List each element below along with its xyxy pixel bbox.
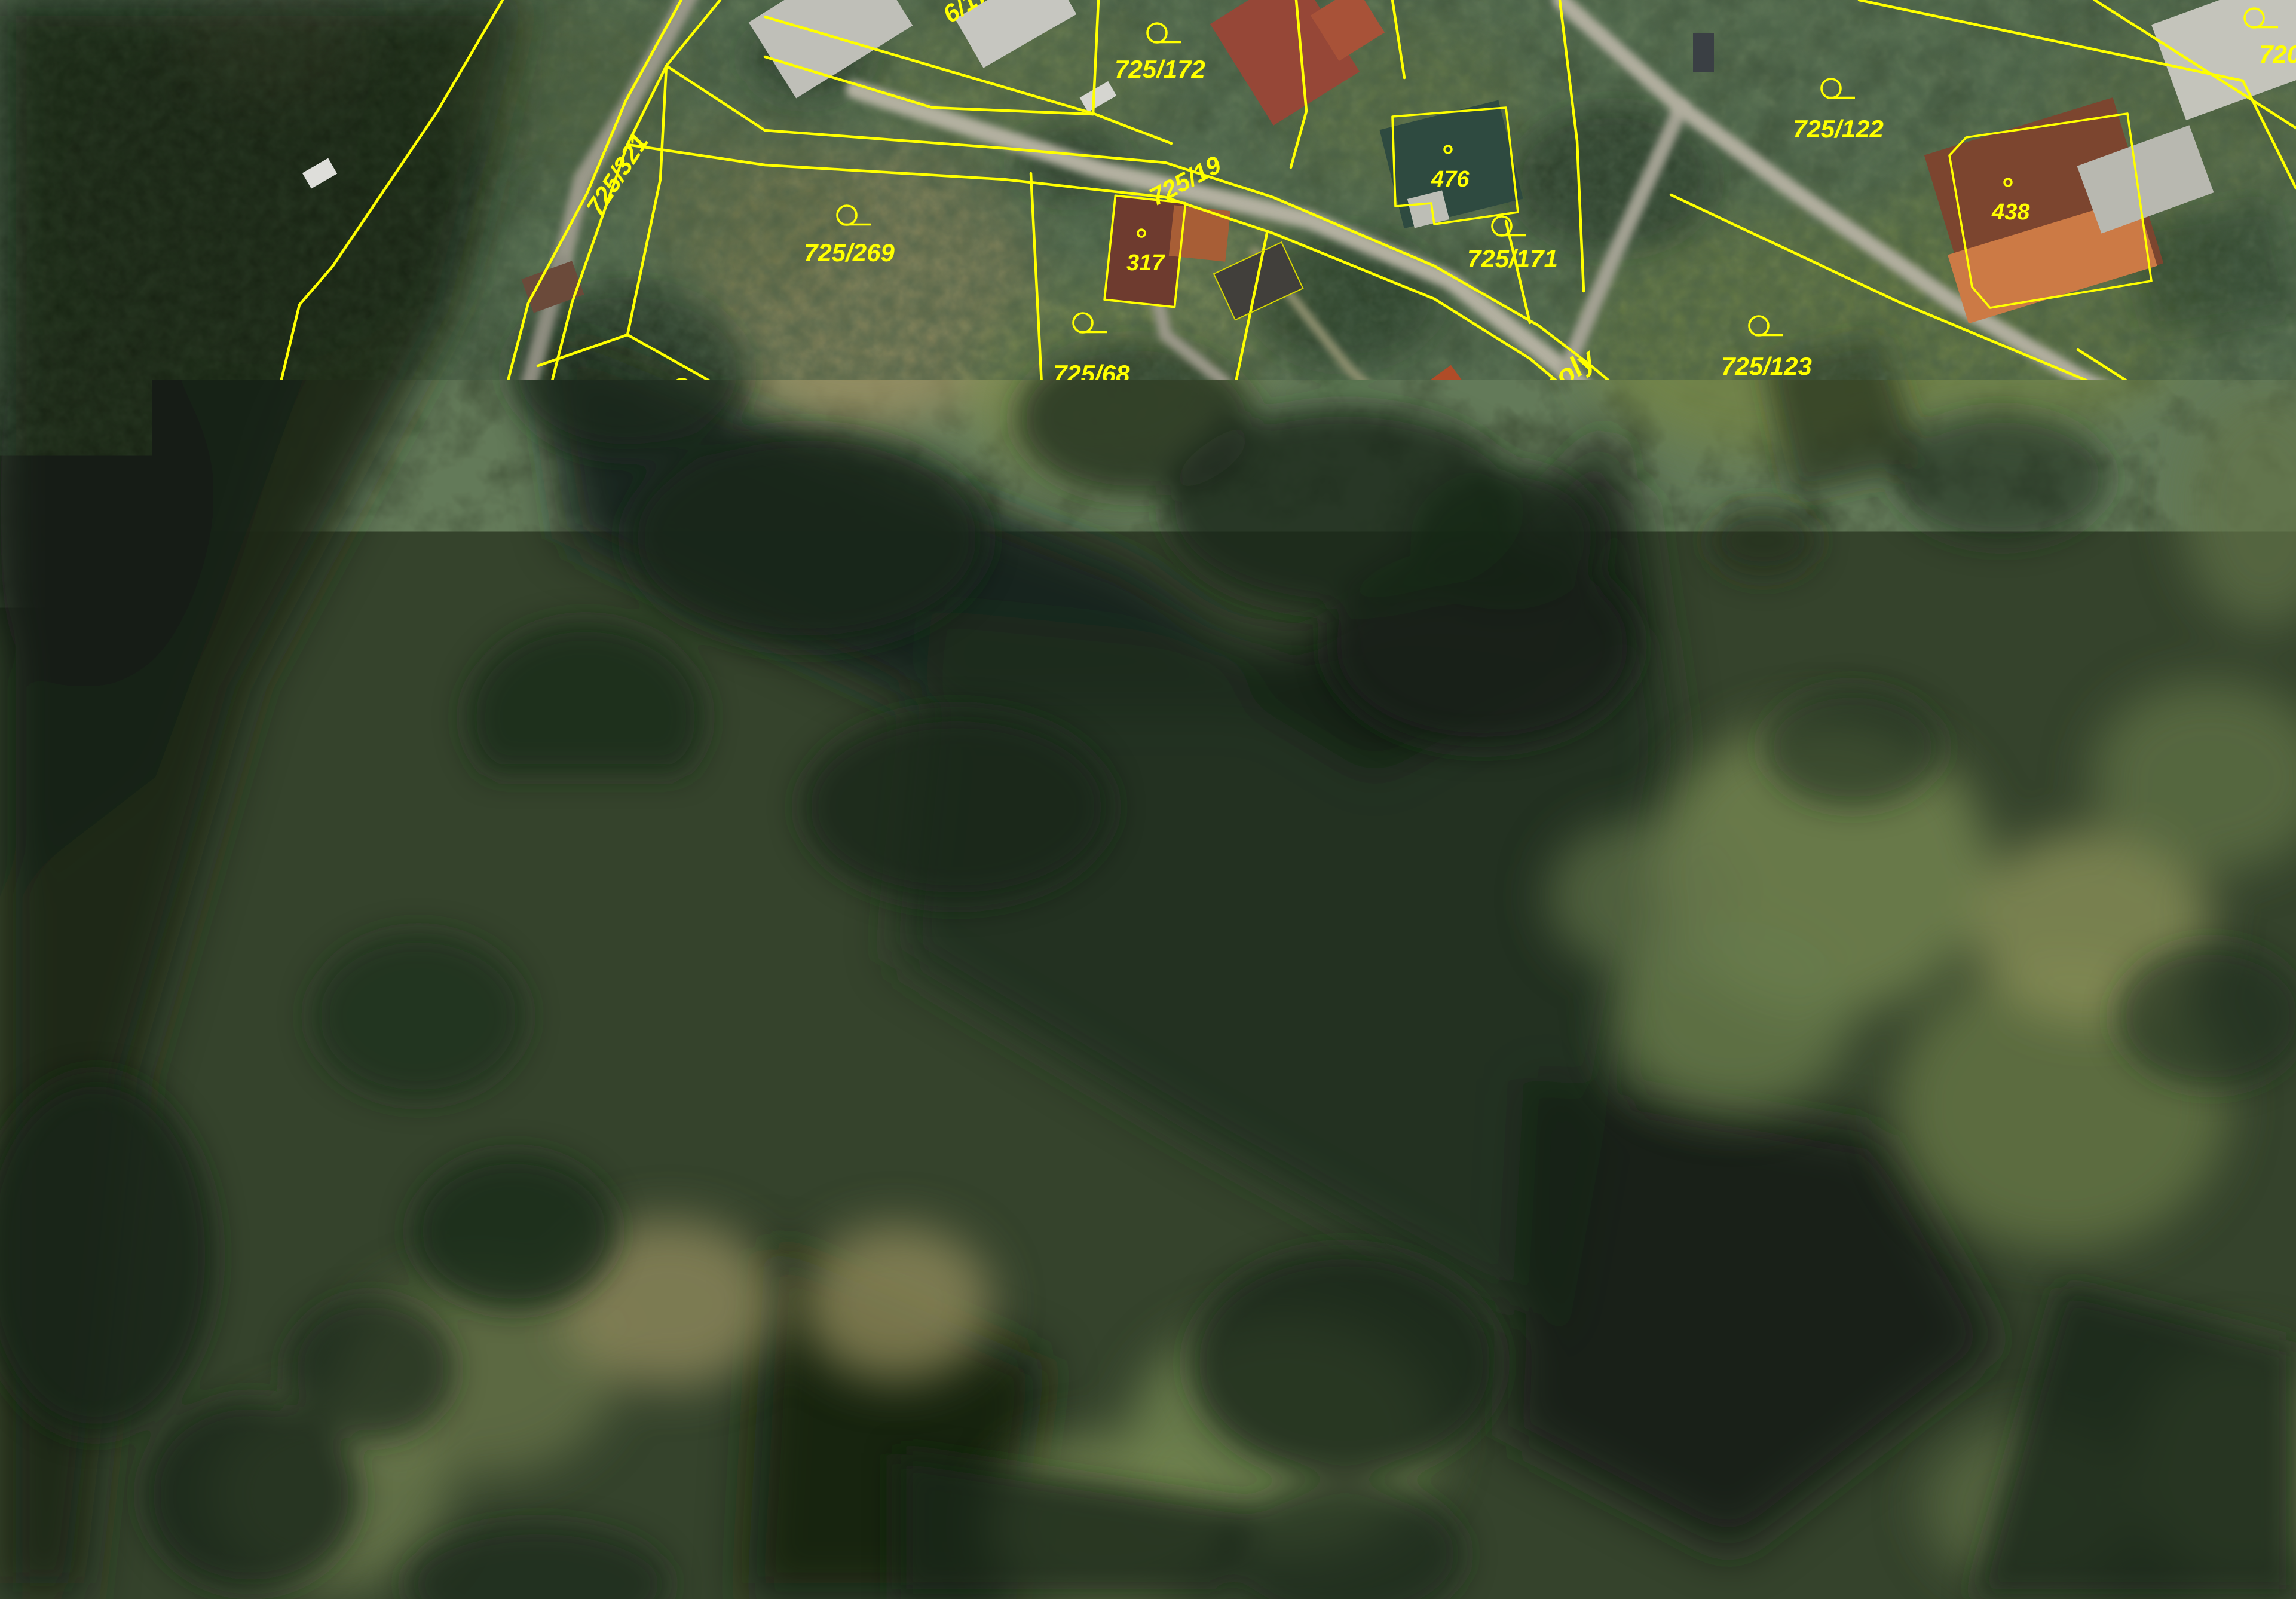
svg-text:725/131: 725/131 [2205,426,2296,454]
svg-text:725/135: 725/135 [638,1246,729,1274]
svg-text:316: 316 [1781,730,1819,755]
svg-text:725/176: 725/176 [2211,1564,2296,1592]
svg-text:476: 476 [1431,167,1470,192]
svg-text:725/172: 725/172 [1115,55,1205,83]
svg-text:855: 855 [365,1429,403,1454]
svg-text:725/129: 725/129 [2119,695,2209,723]
svg-text:767: 767 [459,887,498,912]
svg-text:0: 0 [33,1543,47,1572]
svg-text:725/137: 725/137 [577,1574,668,1599]
svg-text:725/92: 725/92 [1715,1249,1792,1277]
svg-text:725/257: 725/257 [679,1108,770,1136]
svg-text:725/329: 725/329 [1168,567,1259,595]
svg-text:880: 880 [1948,502,1986,527]
svg-text:725/78: 725/78 [1244,1333,1321,1361]
svg-text:725/327: 725/327 [1434,769,1526,797]
svg-text:15: 15 [216,1543,245,1572]
svg-text:725/20: 725/20 [1089,877,1165,905]
svg-text:725/68: 725/68 [1053,360,1130,388]
svg-text:725/122: 725/122 [1793,115,1884,143]
svg-text:455: 455 [963,1538,1002,1563]
svg-text:924: 924 [1563,1350,1600,1375]
svg-text:720/: 720/ [2259,40,2296,68]
svg-text:773: 773 [1463,1326,1501,1352]
svg-text:725/94: 725/94 [1873,1078,1950,1106]
svg-text:10: 10 [152,1543,182,1572]
svg-text:725/17: 725/17 [2151,1165,2229,1193]
svg-text:725/134: 725/134 [427,1316,518,1344]
svg-text:315: 315 [2015,848,2053,873]
svg-text:20: 20 [279,1543,308,1572]
svg-text:725/275: 725/275 [910,720,1000,748]
svg-text:766: 766 [671,996,709,1022]
svg-text:449: 449 [706,1579,744,1599]
svg-text:25 m: 25 m [316,1543,375,1572]
svg-text:725/280: 725/280 [1645,983,1735,1011]
svg-text:725/270: 725/270 [1463,528,1554,557]
svg-text:725/233: 725/233 [2211,982,2296,1010]
svg-text:725/136: 725/136 [417,1545,508,1573]
svg-text:725/171: 725/171 [1467,244,1558,273]
svg-text:794: 794 [730,686,768,711]
svg-text:5: 5 [96,1543,111,1572]
svg-text:438: 438 [1991,200,2030,225]
svg-text:286: 286 [1308,967,1347,992]
svg-text:317: 317 [1126,250,1165,276]
svg-text:725/269: 725/269 [804,239,895,267]
svg-text:725/210: 725/210 [1670,656,1761,684]
svg-text:943: 943 [1370,500,1408,525]
svg-text:725/140: 725/140 [1043,1438,1134,1466]
svg-text:725/123: 725/123 [1721,352,1812,380]
svg-text:447: 447 [644,1362,683,1387]
svg-text:636: 636 [1976,1358,2015,1383]
svg-text:942: 942 [1310,485,1348,510]
svg-text:854: 854 [393,1172,431,1197]
svg-text:772: 772 [1076,1179,1113,1204]
